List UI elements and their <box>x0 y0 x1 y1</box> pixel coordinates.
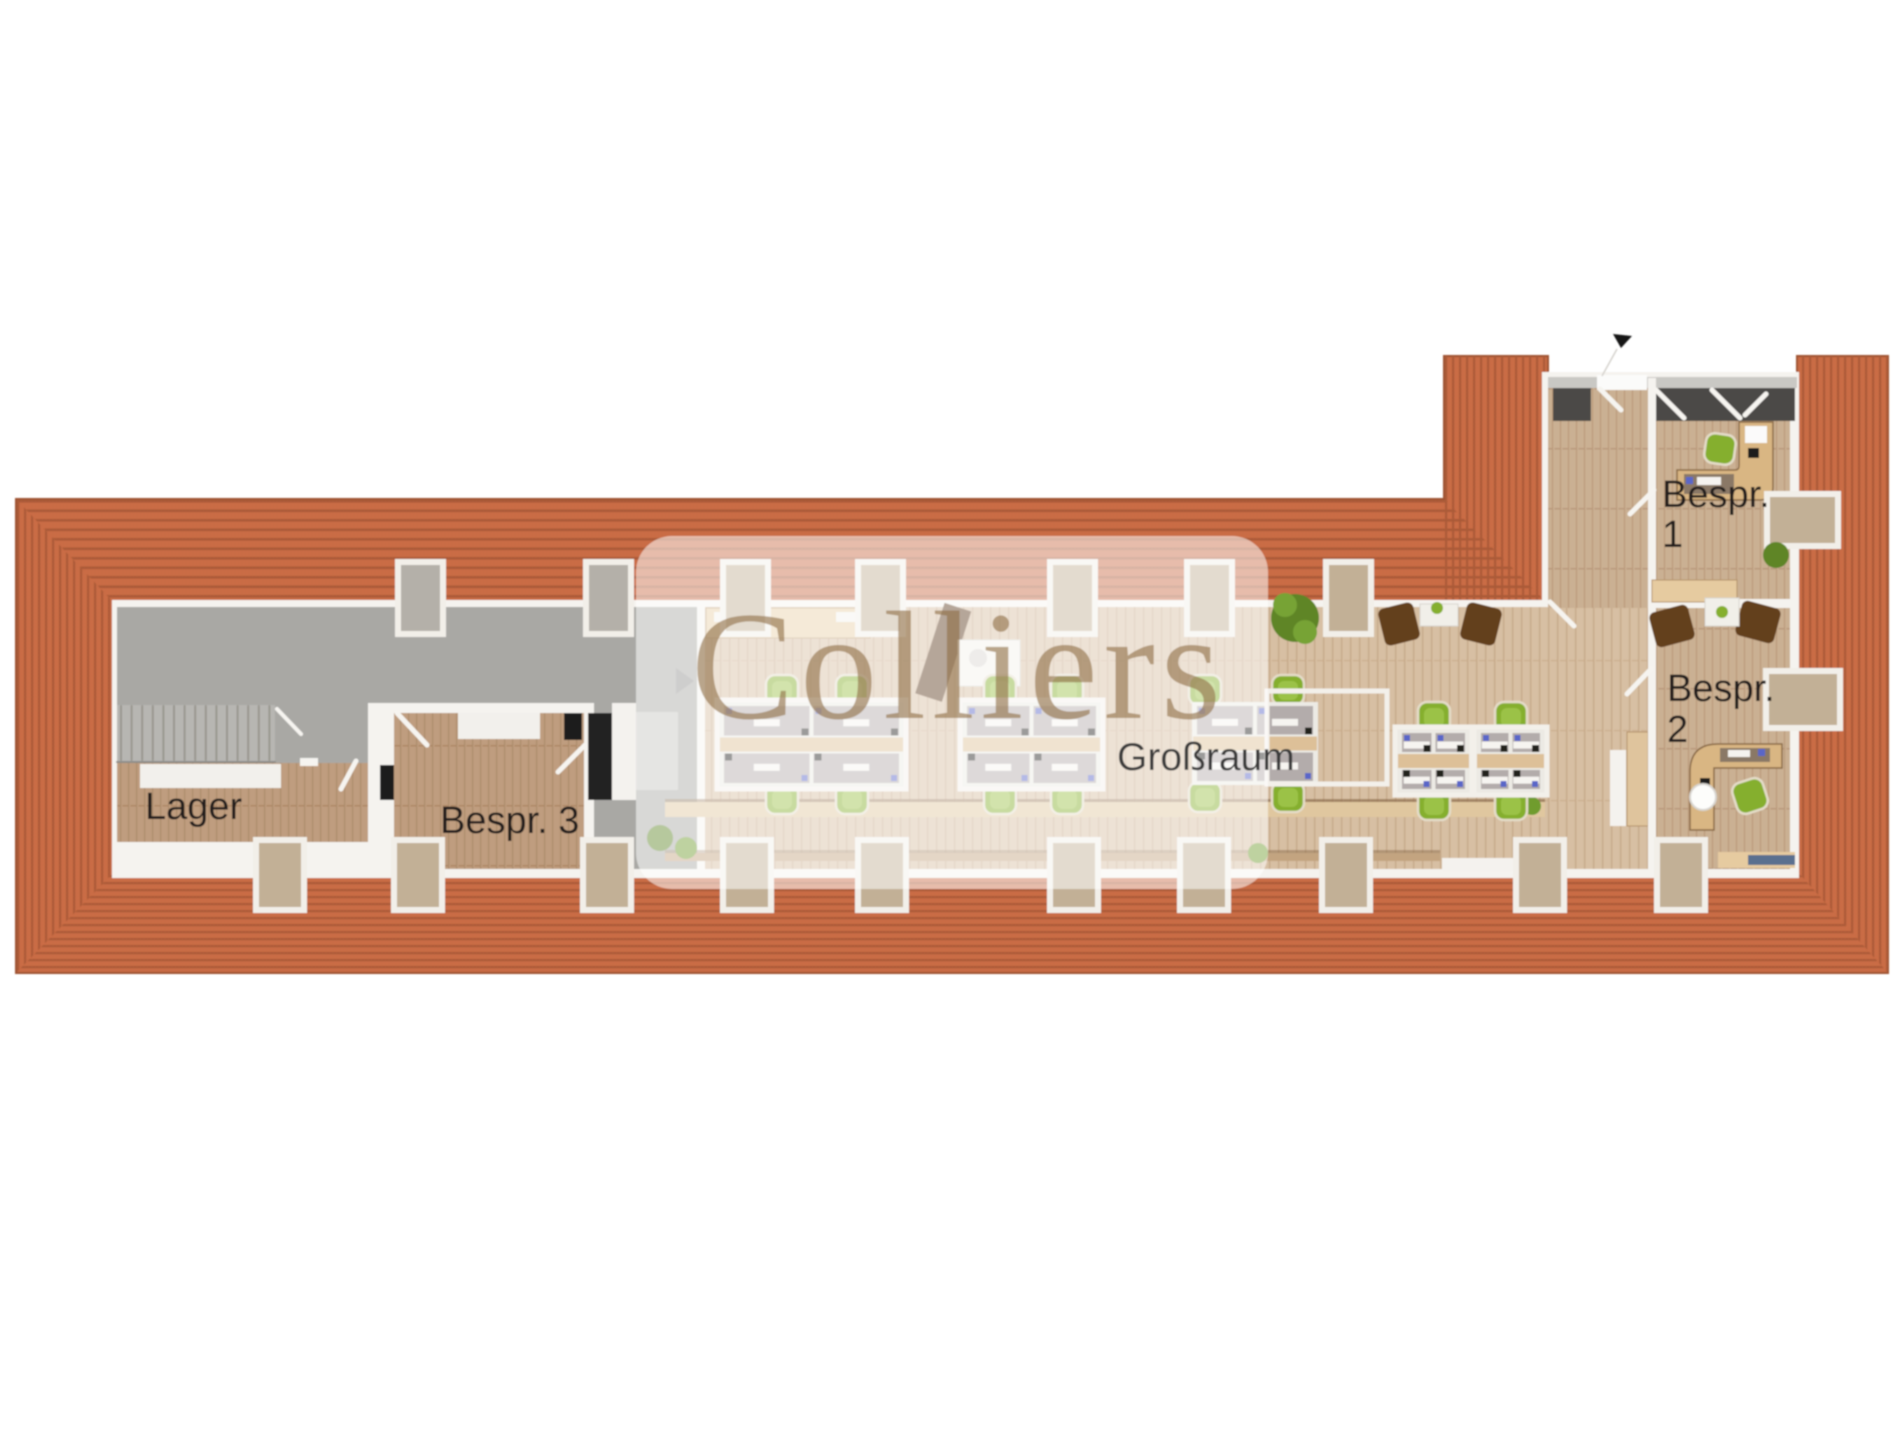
svg-text:Lager: Lager <box>145 786 243 828</box>
svg-text:Bespr. 3: Bespr. 3 <box>440 800 579 842</box>
svg-text:Bespr.: Bespr. <box>1667 668 1775 710</box>
svg-text:Colliers: Colliers <box>691 580 1221 752</box>
svg-text:2: 2 <box>1667 709 1688 751</box>
svg-text:Bespr.: Bespr. <box>1662 474 1770 516</box>
svg-text:Großraum: Großraum <box>1117 736 1295 779</box>
svg-text:1: 1 <box>1662 514 1683 556</box>
